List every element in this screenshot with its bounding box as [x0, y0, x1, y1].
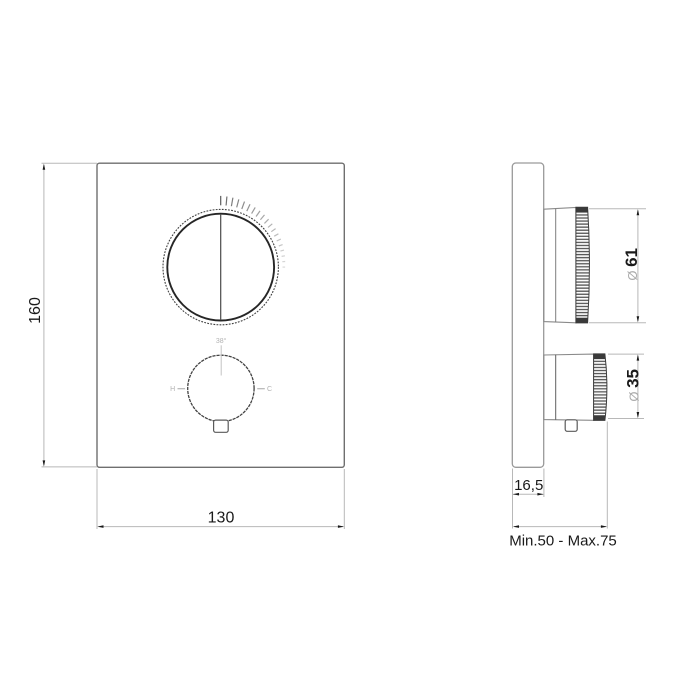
svg-text:Ø 61: Ø 61	[622, 248, 641, 281]
svg-text:Min.50 - Max.75: Min.50 - Max.75	[509, 533, 617, 550]
svg-text:C: C	[267, 386, 272, 393]
svg-text:H: H	[170, 386, 175, 393]
svg-text:16,5: 16,5	[514, 477, 543, 494]
svg-text:160: 160	[27, 297, 44, 324]
svg-text:Ø 35: Ø 35	[623, 369, 642, 402]
svg-text:38°: 38°	[216, 337, 227, 345]
svg-text:130: 130	[208, 510, 235, 527]
